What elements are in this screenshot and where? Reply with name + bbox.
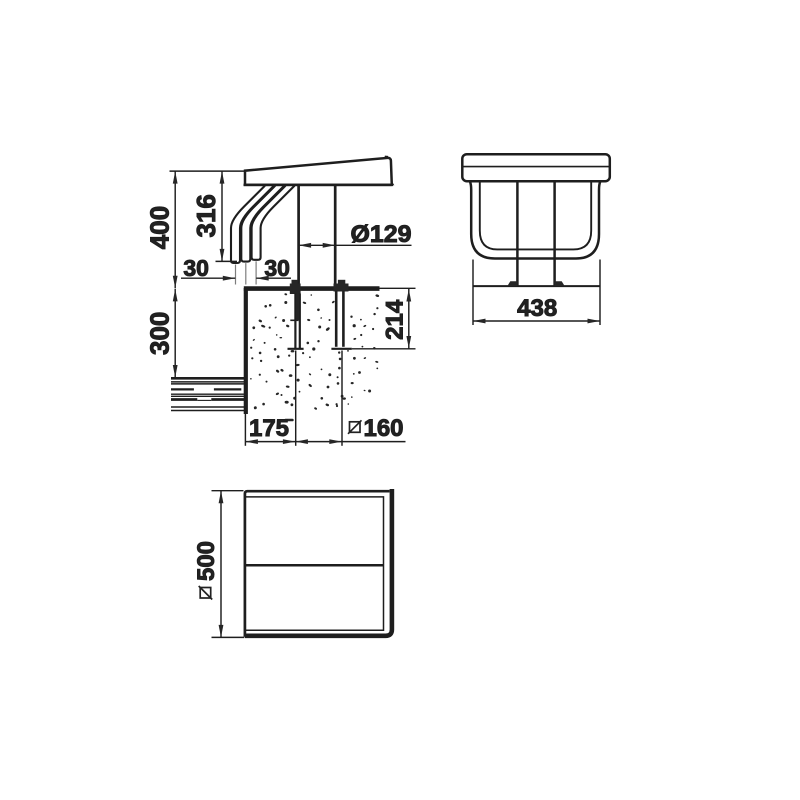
svg-text:500: 500 (193, 541, 220, 581)
svg-text:300: 300 (144, 312, 174, 355)
svg-text:160: 160 (363, 415, 403, 442)
svg-text:438: 438 (517, 295, 557, 322)
svg-text:214: 214 (381, 299, 408, 340)
svg-text:30: 30 (183, 255, 209, 281)
svg-text:175: 175 (249, 415, 289, 442)
svg-text:400: 400 (144, 206, 174, 249)
svg-text:Ø129: Ø129 (351, 221, 412, 248)
svg-text:316: 316 (191, 194, 221, 237)
svg-text:30: 30 (264, 255, 290, 281)
